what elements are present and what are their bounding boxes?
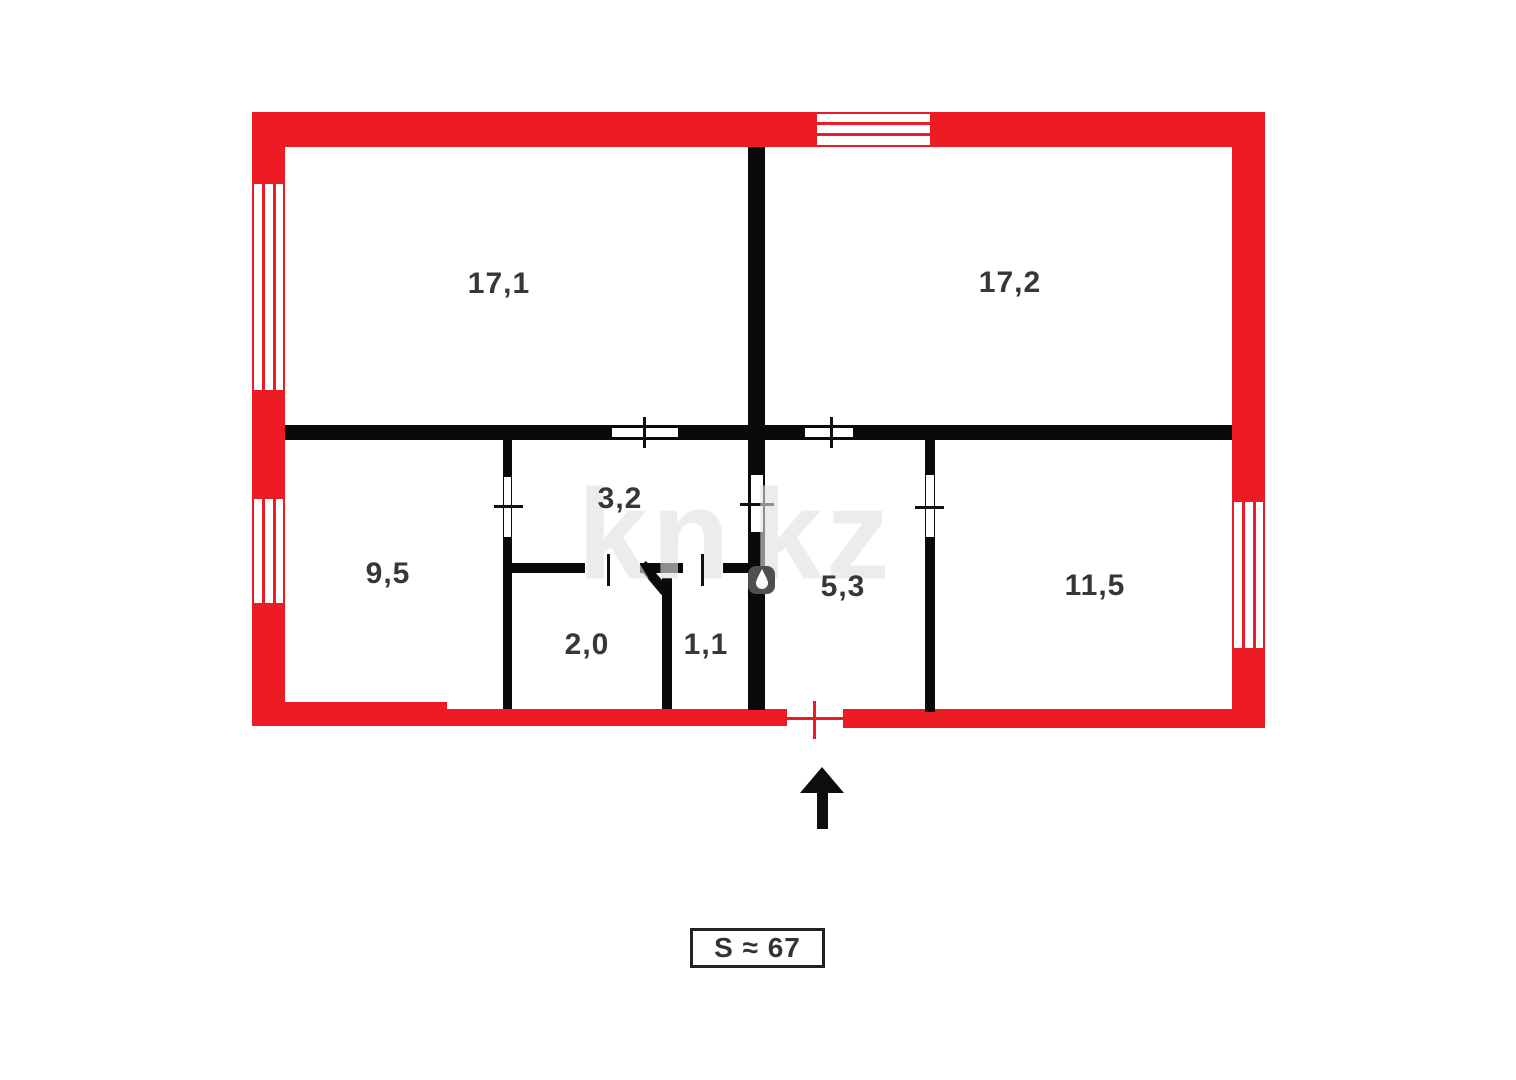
outer-wall-bottom-left xyxy=(252,702,447,726)
opening-tick xyxy=(830,417,833,448)
room-label-17-1: 17,1 xyxy=(468,267,530,301)
window-mullion xyxy=(817,133,930,136)
window-icon-top xyxy=(815,112,932,147)
lock-icon xyxy=(748,566,775,594)
floor-plan: kn kz 17,1 17,2 9,5 3,2 2,0 1,1 5,3 11,5… xyxy=(0,0,1516,1080)
room-label-17-2: 17,2 xyxy=(979,266,1041,300)
room-label-3-2: 3,2 xyxy=(598,482,643,516)
door-tick xyxy=(915,506,944,509)
room-label-11-5: 11,5 xyxy=(1065,569,1126,603)
outer-wall-bottom-right xyxy=(843,709,1265,728)
door-tick xyxy=(494,505,523,508)
entrance-arrow-icon xyxy=(800,767,844,793)
window-mullion xyxy=(273,499,276,603)
total-area-box: S ≈ 67 xyxy=(690,928,825,968)
total-area-label: S ≈ 67 xyxy=(714,932,801,964)
room-label-9-5: 9,5 xyxy=(366,557,411,591)
opening-tick xyxy=(643,417,646,448)
window-mullion xyxy=(262,499,265,603)
wall-mid-horizontal-left xyxy=(285,425,748,440)
opening-172-53 xyxy=(805,428,853,437)
outer-wall-bottom-middle xyxy=(447,709,787,726)
room-label-1-1: 1,1 xyxy=(684,628,729,662)
window-icon-right xyxy=(1232,500,1265,650)
window-mullion xyxy=(262,184,265,390)
room-label-5-3: 5,3 xyxy=(821,570,866,604)
window-mullion xyxy=(1242,502,1245,648)
window-icon-left-lower xyxy=(252,497,285,605)
lock-keyhole-ball xyxy=(756,577,768,589)
window-icon-left-upper xyxy=(252,182,285,392)
room-label-2-0: 2,0 xyxy=(565,628,610,662)
entrance-arrow-stem xyxy=(817,791,828,829)
entrance-tick xyxy=(813,701,816,739)
wall-central-vertical xyxy=(748,147,765,710)
window-mullion xyxy=(273,184,276,390)
outer-wall-top xyxy=(252,112,1265,147)
window-mullion xyxy=(817,122,930,125)
wall-under-32-a xyxy=(512,563,585,573)
window-mullion xyxy=(1253,502,1256,648)
